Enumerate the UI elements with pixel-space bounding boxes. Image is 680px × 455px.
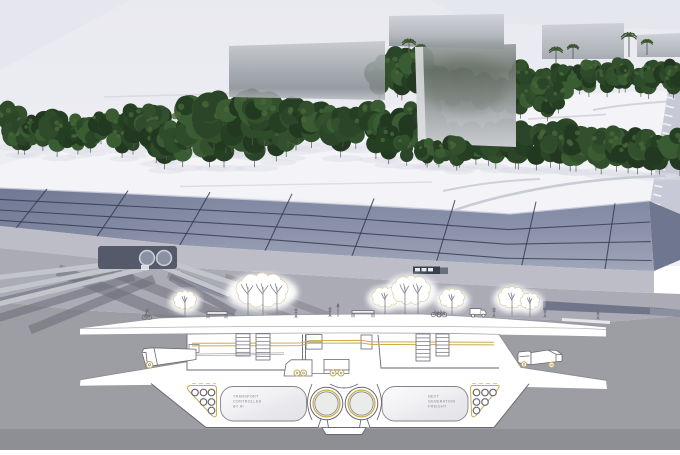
svg-text:BY AI: BY AI xyxy=(233,405,244,409)
svg-text:TRANSPORT: TRANSPORT xyxy=(233,395,259,399)
svg-text:FREIGHT: FREIGHT xyxy=(428,405,447,409)
svg-text:CONTROLLED: CONTROLLED xyxy=(233,400,262,404)
svg-text:GENERATION: GENERATION xyxy=(428,400,456,404)
svg-text:NEXT: NEXT xyxy=(428,395,440,399)
